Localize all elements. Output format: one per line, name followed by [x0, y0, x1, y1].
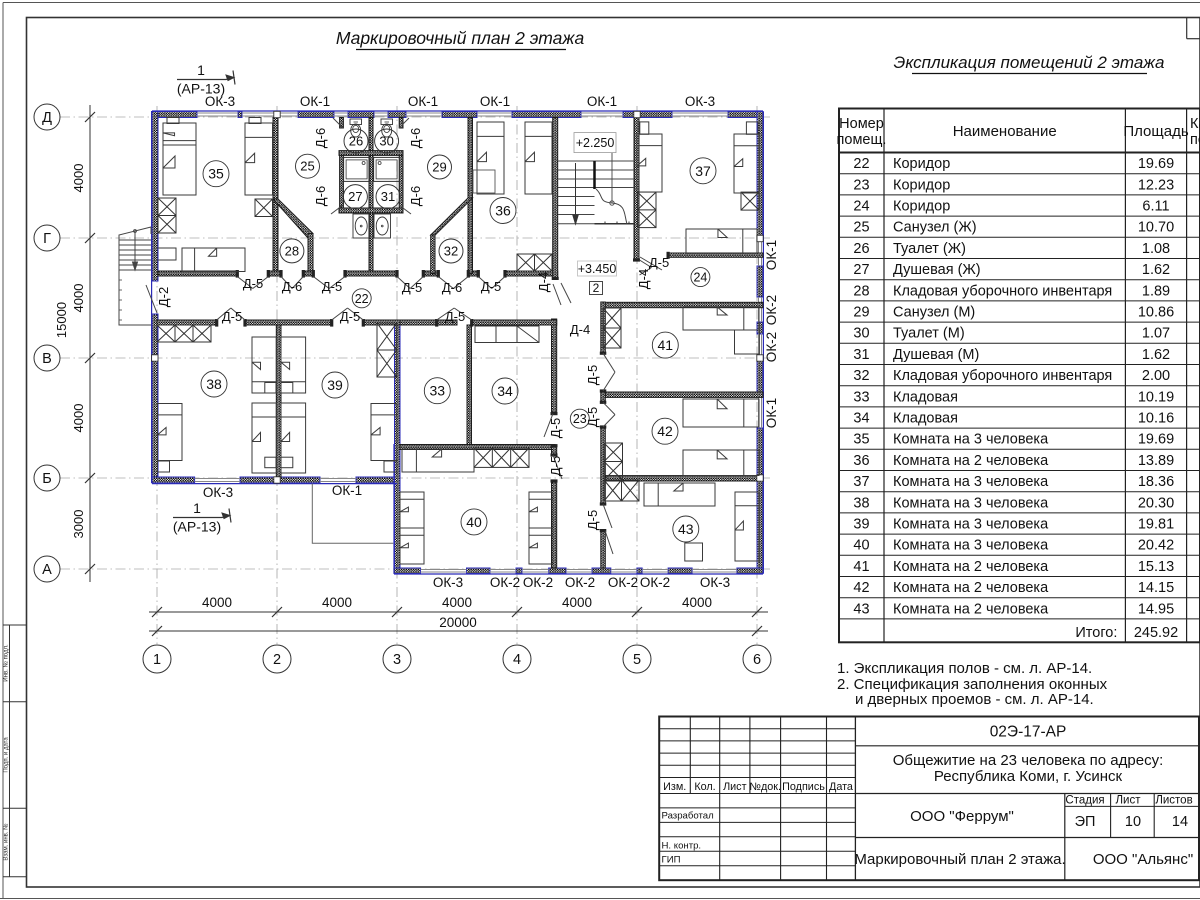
svg-text:4000: 4000 [202, 595, 232, 610]
svg-text:Кладовая: Кладовая [893, 389, 958, 405]
svg-text:34: 34 [497, 383, 513, 399]
svg-text:ОК-3: ОК-3 [685, 94, 715, 109]
svg-text:22: 22 [355, 292, 369, 306]
svg-text:Кладовая уборочного инвентаря: Кладовая уборочного инвентаря [893, 368, 1112, 384]
svg-text:31: 31 [853, 347, 869, 363]
svg-text:ОК-2: ОК-2 [490, 575, 520, 590]
svg-text:32: 32 [853, 368, 869, 384]
svg-text:25: 25 [300, 159, 314, 174]
svg-text:4000: 4000 [71, 404, 86, 433]
svg-text:Д-6: Д-6 [442, 280, 462, 295]
svg-text:Туалет (М): Туалет (М) [893, 326, 965, 342]
svg-text:24: 24 [853, 199, 869, 215]
svg-text:1.62: 1.62 [1142, 347, 1170, 363]
svg-text:4000: 4000 [322, 595, 352, 610]
svg-text:15.13: 15.13 [1138, 559, 1174, 575]
svg-text:Комната на 2 человека: Комната на 2 человека [893, 580, 1049, 596]
svg-text:4000: 4000 [71, 284, 86, 313]
svg-text:Комната на 3 человека: Комната на 3 человека [893, 474, 1049, 490]
svg-text:5: 5 [633, 652, 641, 668]
svg-text:ОК-1: ОК-1 [587, 94, 617, 109]
svg-text:1: 1 [153, 652, 161, 668]
svg-text:42: 42 [657, 423, 673, 439]
svg-text:4000: 4000 [71, 164, 86, 193]
svg-text:2: 2 [593, 281, 600, 295]
svg-text:33: 33 [430, 383, 446, 399]
svg-text:12.23: 12.23 [1138, 177, 1174, 193]
svg-text:10.86: 10.86 [1138, 305, 1174, 321]
svg-text:Д-6: Д-6 [282, 279, 302, 294]
svg-text:Санузел (Ж): Санузел (Ж) [893, 220, 977, 236]
svg-text:Д-5: Д-5 [481, 279, 501, 294]
svg-text:В: В [42, 351, 52, 367]
svg-text:ОК-2: ОК-2 [764, 332, 779, 362]
svg-text:33: 33 [853, 389, 869, 405]
svg-text:Кладовая: Кладовая [893, 411, 958, 427]
svg-text:Маркировочный план 2 этажа: Маркировочный план 2 этажа [336, 28, 585, 48]
svg-text:37: 37 [853, 474, 869, 490]
svg-text:Д-5: Д-5 [322, 279, 342, 294]
svg-text:по: по [1190, 132, 1200, 148]
svg-text:Листов: Листов [1155, 795, 1192, 807]
svg-text:Комната на 3 человека: Комната на 3 человека [893, 432, 1049, 448]
svg-text:245.92: 245.92 [1134, 625, 1178, 641]
svg-text:и дверных проемов - см. л. АР-: и дверных проемов - см. л. АР-14. [855, 691, 1094, 708]
svg-text:28: 28 [853, 283, 869, 299]
svg-text:Г: Г [43, 231, 51, 247]
svg-text:ОК-1: ОК-1 [408, 94, 438, 109]
svg-text:24: 24 [693, 271, 707, 285]
svg-text:30: 30 [379, 134, 393, 149]
svg-text:14: 14 [1172, 814, 1188, 830]
svg-text:1: 1 [197, 62, 205, 78]
svg-text:А: А [42, 562, 52, 578]
svg-text:40: 40 [853, 538, 869, 554]
svg-text:15000: 15000 [54, 302, 69, 338]
svg-text:23: 23 [573, 412, 587, 426]
svg-text:ОК-2: ОК-2 [608, 575, 638, 590]
svg-text:22: 22 [853, 156, 869, 172]
svg-text:Маркировочный план 2 этажа.: Маркировочный план 2 этажа. [854, 851, 1065, 868]
svg-text:Д-5: Д-5 [548, 418, 563, 438]
svg-text:Д-5: Д-5 [585, 510, 600, 530]
svg-text:43: 43 [678, 521, 694, 537]
svg-text:Д-5: Д-5 [340, 309, 360, 324]
svg-text:Инв. № подл.: Инв. № подл. [3, 644, 10, 682]
svg-text:ОК-2: ОК-2 [523, 575, 553, 590]
svg-text:6: 6 [753, 652, 761, 668]
svg-text:41: 41 [853, 559, 869, 575]
svg-text:4: 4 [513, 652, 521, 668]
svg-text:Комната на 3 человека: Комната на 3 человека [893, 538, 1049, 554]
svg-text:Республика Коми, г. Усинск: Республика Коми, г. Усинск [934, 768, 1123, 785]
svg-text:Номер: Номер [839, 116, 884, 132]
svg-text:26: 26 [853, 241, 869, 257]
svg-text:36: 36 [853, 453, 869, 469]
svg-text:Д-5: Д-5 [548, 456, 563, 476]
svg-text:18.36: 18.36 [1138, 474, 1174, 490]
svg-text:1. Экспликация полов - см. л.: 1. Экспликация полов - см. л. АР-14. [837, 660, 1092, 677]
svg-text:Коридор: Коридор [893, 156, 950, 172]
svg-text:42: 42 [853, 580, 869, 596]
svg-text:28: 28 [285, 243, 299, 258]
svg-text:13.89: 13.89 [1138, 453, 1174, 469]
svg-text:Лист: Лист [1116, 795, 1142, 807]
svg-text:40: 40 [466, 514, 482, 530]
svg-text:ОК-2: ОК-2 [764, 295, 779, 325]
svg-text:ОК-1: ОК-1 [332, 483, 362, 498]
svg-text:37: 37 [695, 163, 711, 179]
svg-text:Подпись: Подпись [782, 781, 825, 793]
svg-text:29: 29 [432, 160, 446, 175]
svg-text:Н. контр.: Н. контр. [662, 841, 702, 852]
svg-text:19.81: 19.81 [1138, 517, 1174, 533]
svg-text:Д-4: Д-4 [570, 322, 590, 337]
svg-text:Д-6: Д-6 [313, 128, 328, 148]
svg-text:ОК-2: ОК-2 [565, 575, 595, 590]
svg-text:Д-5: Д-5 [402, 280, 422, 295]
svg-text:ООО "Феррум": ООО "Феррум" [910, 808, 1014, 825]
svg-text:2: 2 [273, 652, 281, 668]
svg-text:4000: 4000 [682, 595, 712, 610]
svg-text:ОК-1: ОК-1 [300, 94, 330, 109]
svg-text:27: 27 [348, 189, 362, 204]
svg-text:34: 34 [853, 411, 869, 427]
svg-text:+2.250: +2.250 [576, 136, 615, 150]
svg-text:25: 25 [853, 220, 869, 236]
svg-text:10.16: 10.16 [1138, 411, 1174, 427]
svg-text:Комната на 3 человека: Комната на 3 человека [893, 495, 1049, 511]
svg-text:26: 26 [349, 134, 363, 149]
svg-text:1.89: 1.89 [1142, 283, 1170, 299]
svg-text:23: 23 [853, 177, 869, 193]
svg-text:(АР-13): (АР-13) [173, 519, 221, 535]
svg-text:Д-6: Д-6 [408, 128, 423, 148]
svg-text:3: 3 [393, 652, 401, 668]
svg-text:ОК-1: ОК-1 [764, 398, 779, 428]
svg-text:Д-5: Д-5 [222, 309, 242, 324]
svg-text:Взам. инв. №: Взам. инв. № [3, 823, 10, 860]
svg-text:Д-5: Д-5 [649, 255, 669, 270]
svg-text:Наименование: Наименование [953, 123, 1057, 140]
svg-text:Разработал: Разработал [662, 811, 714, 822]
svg-text:ОК-1: ОК-1 [480, 94, 510, 109]
svg-text:Лист: Лист [723, 781, 747, 793]
svg-text:41: 41 [658, 337, 674, 353]
svg-text:Ка: Ка [1190, 116, 1200, 132]
svg-text:20000: 20000 [439, 615, 477, 630]
svg-text:Д-6: Д-6 [408, 186, 423, 206]
svg-text:14.15: 14.15 [1138, 580, 1174, 596]
svg-text:10: 10 [1125, 814, 1141, 830]
svg-text:ГИП: ГИП [662, 855, 681, 866]
svg-text:Изм.: Изм. [663, 781, 686, 793]
svg-text:35: 35 [853, 432, 869, 448]
svg-text:ЭП: ЭП [1075, 814, 1096, 830]
svg-text:Д-2: Д-2 [156, 287, 171, 307]
svg-text:ОК-3: ОК-3 [433, 575, 463, 590]
svg-text:Д-5: Д-5 [243, 276, 263, 291]
svg-text:(АР-13): (АР-13) [177, 81, 225, 97]
svg-text:10.70: 10.70 [1138, 220, 1174, 236]
svg-text:1.62: 1.62 [1142, 262, 1170, 278]
svg-text:ООО "Альянс": ООО "Альянс" [1093, 851, 1193, 868]
svg-text:Душевая (М): Душевая (М) [893, 347, 979, 363]
svg-text:32: 32 [444, 244, 458, 259]
svg-text:10.19: 10.19 [1138, 389, 1174, 405]
svg-text:29: 29 [853, 305, 869, 321]
svg-text:39: 39 [853, 517, 869, 533]
svg-text:4000: 4000 [562, 595, 592, 610]
svg-text:20.42: 20.42 [1138, 538, 1174, 554]
svg-text:Дата: Дата [829, 781, 853, 793]
svg-text:№док.: №док. [749, 781, 781, 793]
svg-text:помещ.: помещ. [837, 132, 887, 148]
svg-text:3000: 3000 [71, 510, 86, 539]
svg-text:Туалет (Ж): Туалет (Ж) [893, 241, 966, 257]
svg-text:39: 39 [327, 377, 343, 393]
svg-text:14.95: 14.95 [1138, 601, 1174, 617]
svg-text:ОК-2: ОК-2 [640, 575, 670, 590]
svg-text:Стадия: Стадия [1065, 795, 1104, 807]
svg-text:4000: 4000 [442, 595, 472, 610]
svg-text:Общежитие на 23 человека по ад: Общежитие на 23 человека по адресу: [893, 752, 1163, 769]
svg-text:1: 1 [193, 500, 201, 516]
svg-text:6.11: 6.11 [1142, 199, 1169, 215]
svg-text:19.69: 19.69 [1138, 432, 1174, 448]
svg-text:30: 30 [853, 326, 869, 342]
svg-text:Комната на 2 человека: Комната на 2 человека [893, 559, 1049, 575]
svg-text:36: 36 [495, 203, 511, 219]
svg-text:1.07: 1.07 [1142, 326, 1170, 342]
svg-text:Площадь: Площадь [1123, 123, 1188, 140]
svg-text:Д-4: Д-4 [536, 272, 551, 292]
svg-text:20.30: 20.30 [1138, 495, 1174, 511]
svg-text:Душевая (Ж): Душевая (Ж) [893, 262, 981, 278]
svg-text:02Э-17-АР: 02Э-17-АР [990, 724, 1067, 741]
svg-text:Д-5: Д-5 [445, 309, 465, 324]
svg-text:Санузел (М): Санузел (М) [893, 305, 975, 321]
svg-text:Д: Д [42, 110, 52, 126]
svg-text:Комната на 2 человека: Комната на 2 человека [893, 453, 1049, 469]
svg-text:+3.450: +3.450 [578, 262, 617, 276]
svg-text:31: 31 [381, 189, 395, 204]
svg-text:38: 38 [206, 376, 222, 392]
svg-text:2.00: 2.00 [1142, 368, 1170, 384]
svg-text:Итого:: Итого: [1075, 625, 1117, 641]
svg-text:ОК-3: ОК-3 [203, 485, 233, 500]
svg-text:Д-4: Д-4 [636, 269, 651, 289]
svg-text:1.08: 1.08 [1142, 241, 1170, 257]
svg-text:27: 27 [853, 262, 869, 278]
svg-text:Экспликация помещений 2 этажа: Экспликация помещений 2 этажа [894, 53, 1165, 72]
svg-text:Комната на 3 человека: Комната на 3 человека [893, 517, 1049, 533]
svg-text:Комната на 2 человека: Комната на 2 человека [893, 601, 1049, 617]
svg-text:Б: Б [42, 471, 52, 487]
svg-text:Коридор: Коридор [893, 199, 950, 215]
svg-text:ОК-1: ОК-1 [764, 240, 779, 270]
svg-text:35: 35 [208, 166, 224, 182]
svg-text:Подп. и дата: Подп. и дата [4, 737, 10, 773]
svg-text:Д-5: Д-5 [585, 365, 600, 385]
svg-text:43: 43 [853, 601, 869, 617]
svg-text:38: 38 [853, 495, 869, 511]
svg-text:Коридор: Коридор [893, 177, 950, 193]
svg-text:Кол.: Кол. [694, 781, 715, 793]
svg-text:Кладовая уборочного инвентаря: Кладовая уборочного инвентаря [893, 283, 1112, 299]
svg-text:19.69: 19.69 [1138, 156, 1174, 172]
svg-text:Д-6: Д-6 [313, 186, 328, 206]
svg-text:ОК-3: ОК-3 [700, 575, 730, 590]
